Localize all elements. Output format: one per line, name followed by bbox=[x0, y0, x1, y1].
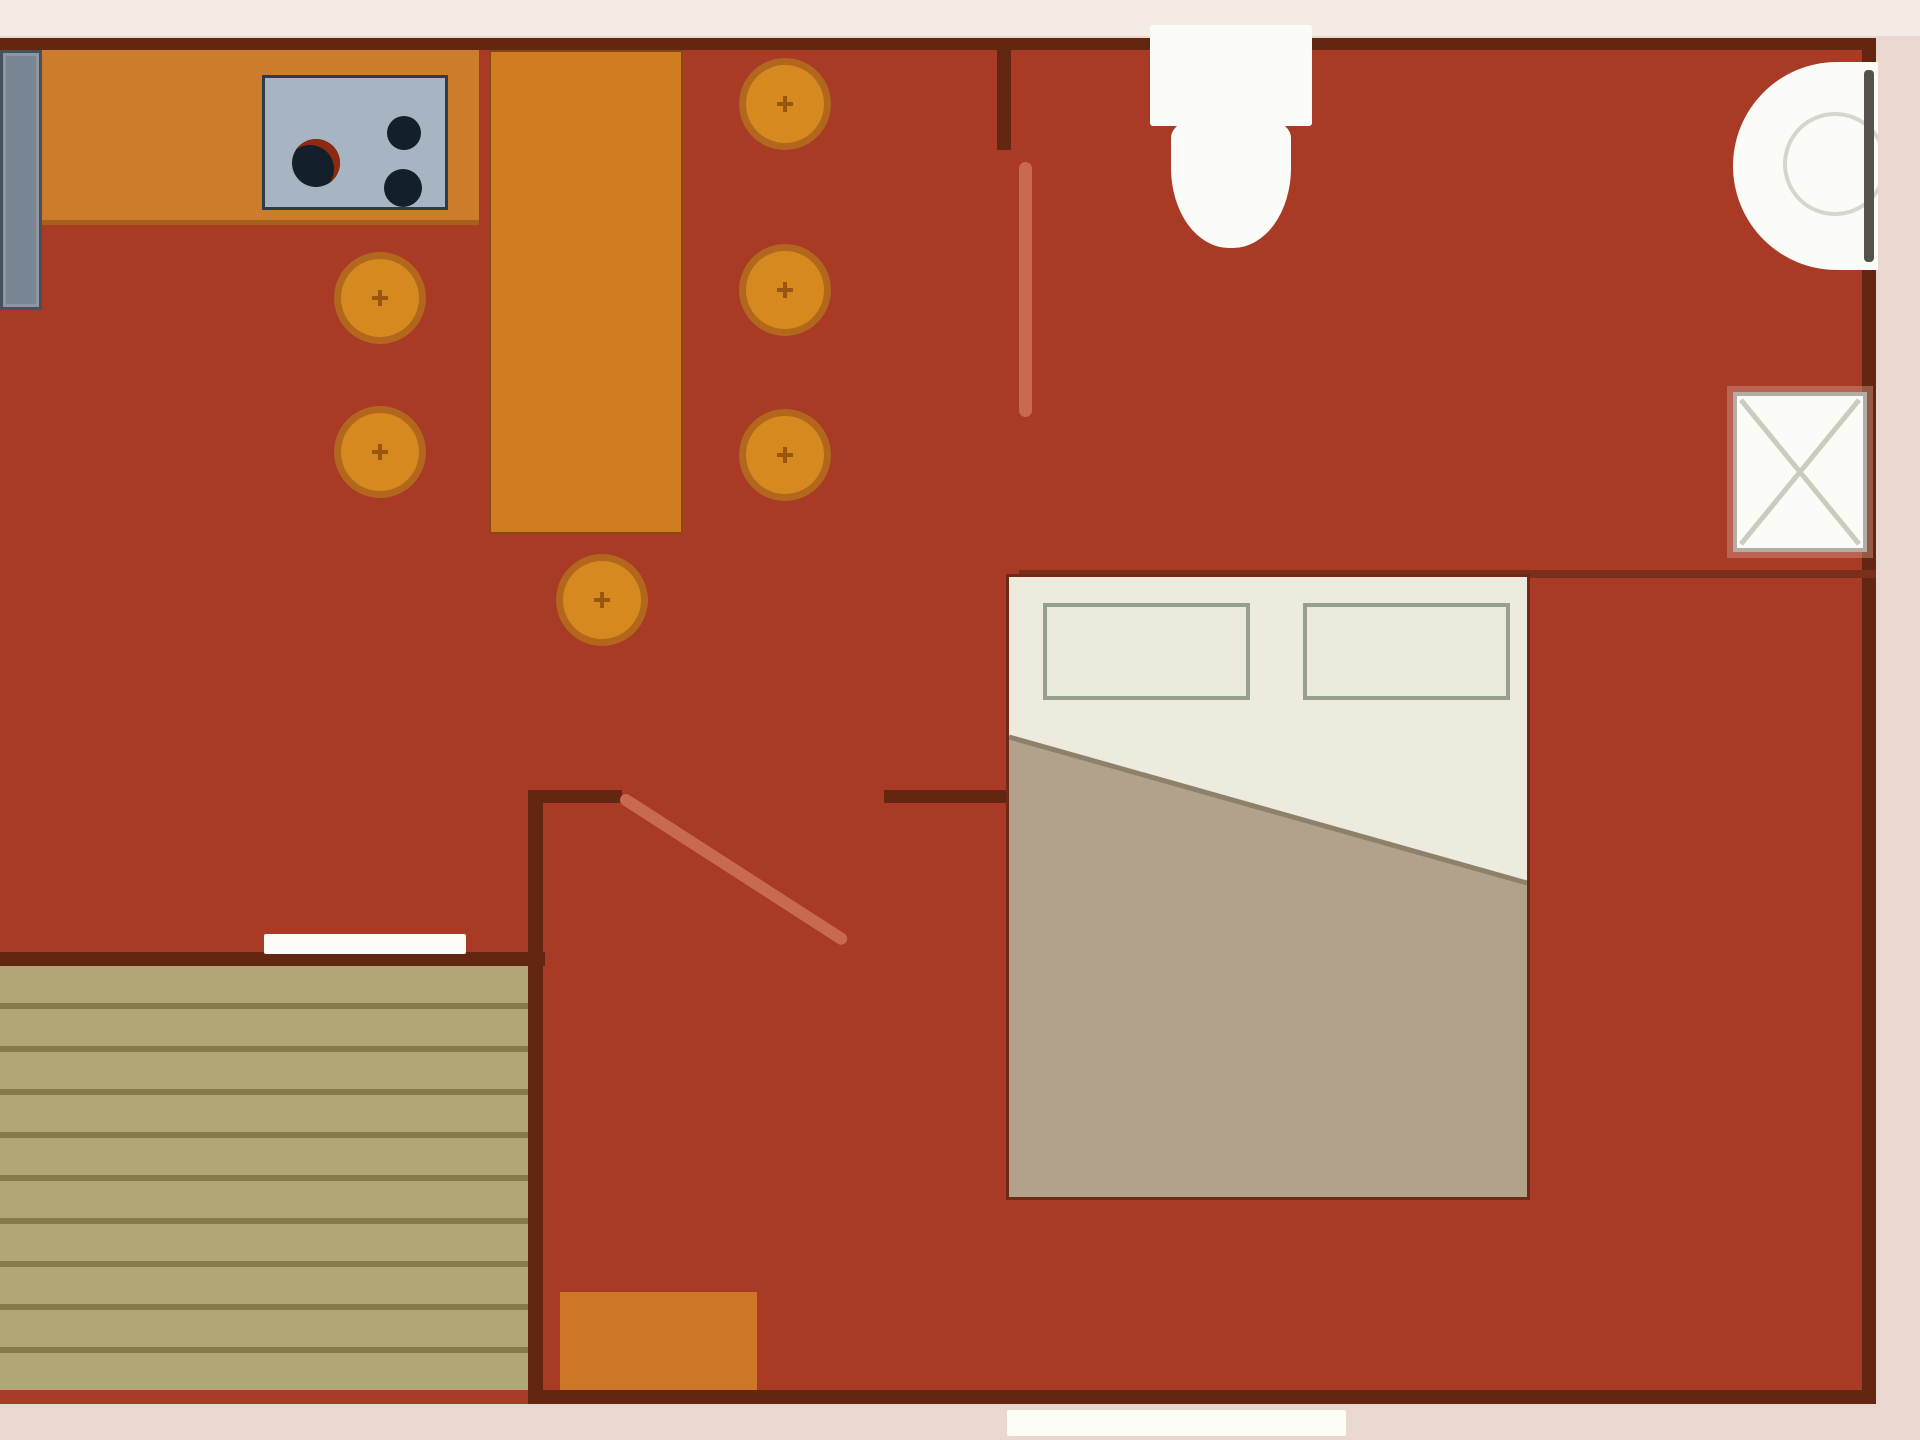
bar-stool bbox=[739, 244, 831, 336]
blanket bbox=[1009, 577, 1527, 1197]
stove-burner bbox=[292, 139, 340, 187]
stool-mark bbox=[378, 290, 382, 306]
doormat bbox=[560, 1292, 757, 1392]
stool-mark bbox=[783, 96, 787, 112]
floor-plan bbox=[0, 0, 1920, 1440]
wash-basin-edge bbox=[1864, 70, 1874, 262]
dining-table bbox=[489, 50, 683, 534]
bathroom-door-leaf bbox=[1019, 162, 1032, 417]
stool-mark bbox=[783, 282, 787, 298]
wall-stub-bedroom-right bbox=[884, 790, 1019, 803]
stove-burner bbox=[384, 169, 422, 207]
wall-stub-bathroom bbox=[997, 38, 1011, 150]
bedroom-window-opening bbox=[1007, 1410, 1346, 1436]
bar-stool bbox=[334, 252, 426, 344]
wall-hall-left bbox=[528, 790, 543, 1404]
stool-mark bbox=[378, 444, 382, 460]
wall-deck-top bbox=[0, 952, 545, 966]
bar-stool bbox=[739, 58, 831, 150]
double-bed bbox=[1006, 574, 1530, 1200]
stove bbox=[262, 75, 448, 210]
wall-stub-bedroom-left bbox=[528, 790, 622, 803]
deck-planks bbox=[0, 966, 528, 1390]
toilet-tank bbox=[1150, 25, 1312, 126]
refrigerator bbox=[0, 50, 42, 310]
stool-mark bbox=[783, 447, 787, 463]
stove-burner bbox=[387, 116, 421, 150]
wall-bottom bbox=[528, 1390, 1876, 1404]
bar-stool bbox=[739, 409, 831, 501]
stool-mark bbox=[600, 592, 604, 608]
plan-border-top bbox=[0, 0, 1920, 36]
bar-stool bbox=[334, 406, 426, 498]
shower-cross-icon bbox=[1737, 396, 1863, 548]
wall-top bbox=[0, 38, 1876, 50]
deck-door-opening bbox=[264, 934, 466, 954]
shower-box bbox=[1733, 392, 1867, 552]
bar-stool bbox=[556, 554, 648, 646]
